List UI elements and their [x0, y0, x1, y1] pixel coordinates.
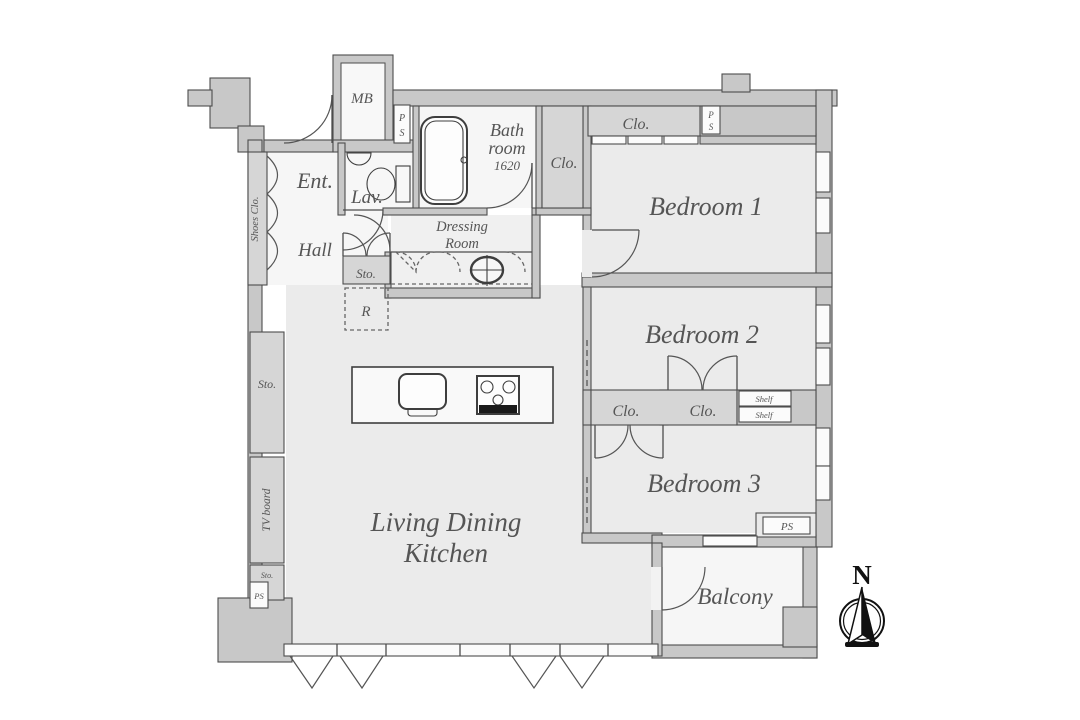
hall-storage-label: Sto.	[356, 266, 376, 281]
closet-sliding-track-1	[592, 136, 626, 144]
floor-plan-drawing: MB P S Ent. Shoes Clo. Lav. Bath room 16…	[0, 0, 1080, 720]
closet-row-left-wall	[583, 390, 591, 425]
lav-bottom-wall	[383, 208, 487, 215]
closet-sliding-track-3	[664, 136, 698, 144]
stove-grill	[479, 405, 517, 413]
north-tab	[722, 74, 750, 92]
bedroom2-label: Bedroom 2	[645, 320, 759, 349]
shelf-label-top: Shelf	[756, 394, 775, 404]
refrigerator-label: R	[360, 304, 370, 320]
bedroom1-door-opening	[582, 230, 592, 277]
balcony-corner-block	[783, 607, 817, 647]
bathroom-label-1: Bath	[490, 120, 524, 140]
lavatory-label: Lav.	[350, 187, 383, 208]
window-bedroom1-b	[816, 198, 830, 233]
ps-top-right-s: S	[709, 122, 714, 132]
window-bedroom1-a	[816, 152, 830, 192]
dressing-bottom-wall	[385, 288, 540, 298]
shoes-closet-label: Shoes Clo.	[250, 197, 261, 242]
small-storage-label: Sto.	[261, 571, 273, 580]
mid-closet-left-wall	[536, 106, 542, 210]
bathroom-label-2: room	[488, 138, 525, 158]
compass-needle-light	[848, 587, 862, 644]
shelf-label-bottom: Shelf	[756, 410, 775, 420]
compass-base	[845, 642, 879, 647]
window-bedroom3-balcony	[703, 536, 757, 546]
mid-closet-label: Clo.	[550, 155, 577, 172]
window-bedroom2-b	[816, 348, 830, 385]
entrance-threshold	[264, 140, 333, 152]
dressing-right-wall	[532, 215, 540, 298]
bedroom3-label: Bedroom 3	[647, 469, 761, 498]
bedroom1-label: Bedroom 1	[649, 192, 763, 221]
bathroom-size-label: 1620	[494, 158, 521, 173]
casement-window-1	[290, 656, 333, 688]
north-label: N	[852, 560, 872, 590]
mid-closet-bottom-wall	[536, 208, 591, 215]
meter-box-label: MB	[350, 91, 373, 107]
casement-window-4	[560, 656, 604, 688]
window-bedroom3-b	[816, 466, 830, 500]
bathroom-left-wall	[413, 106, 419, 210]
bedroom1-2-wall	[582, 273, 832, 287]
closet-sliding-track-2	[628, 136, 662, 144]
left-storage-strip	[250, 332, 284, 453]
ps-bedroom3-label: PS	[780, 521, 794, 533]
ps-top-left-p: P	[398, 113, 405, 124]
ps-bottom-left-label: PS	[253, 591, 264, 601]
ldk-label-1: Living Dining	[370, 507, 522, 537]
entrance-door-arc	[284, 95, 332, 143]
casement-window-3	[512, 656, 556, 688]
ps-top-left-s: S	[400, 128, 405, 139]
kitchen-island	[352, 367, 553, 423]
top-left-block	[210, 78, 250, 128]
top-left-tab	[188, 90, 212, 106]
left-storage-label: Sto.	[258, 377, 276, 391]
balcony-door-opening	[651, 567, 663, 610]
balcony-label: Balcony	[697, 584, 773, 609]
dressing-label-1: Dressing	[435, 219, 488, 235]
bedroom3-bottom-wall-left	[582, 533, 662, 543]
kitchen-sink	[399, 374, 446, 409]
floor-plan: MB P S Ent. Shoes Clo. Lav. Bath room 16…	[0, 0, 1080, 720]
window-bedroom2-a	[816, 305, 830, 343]
closet-row-label-left: Clo.	[612, 403, 639, 420]
hall-label: Hall	[297, 240, 332, 261]
dressing-label-2: Room	[444, 236, 479, 252]
top-closet-label: Clo.	[622, 116, 649, 133]
ldk-label-2: Kitchen	[403, 538, 488, 568]
north-wall	[393, 90, 837, 106]
tv-board-label: TV board	[261, 488, 273, 531]
ps-top-right-p: P	[707, 110, 714, 120]
entrance-label: Ent.	[296, 168, 333, 193]
lavatory-left-wall	[338, 143, 345, 215]
bathtub	[421, 117, 467, 204]
ldk-window-sill	[284, 644, 658, 656]
casement-window-2	[340, 656, 383, 688]
closet-row-label-right: Clo.	[689, 403, 716, 420]
north-compass: N	[840, 560, 884, 647]
window-bedroom3-a	[816, 428, 830, 466]
